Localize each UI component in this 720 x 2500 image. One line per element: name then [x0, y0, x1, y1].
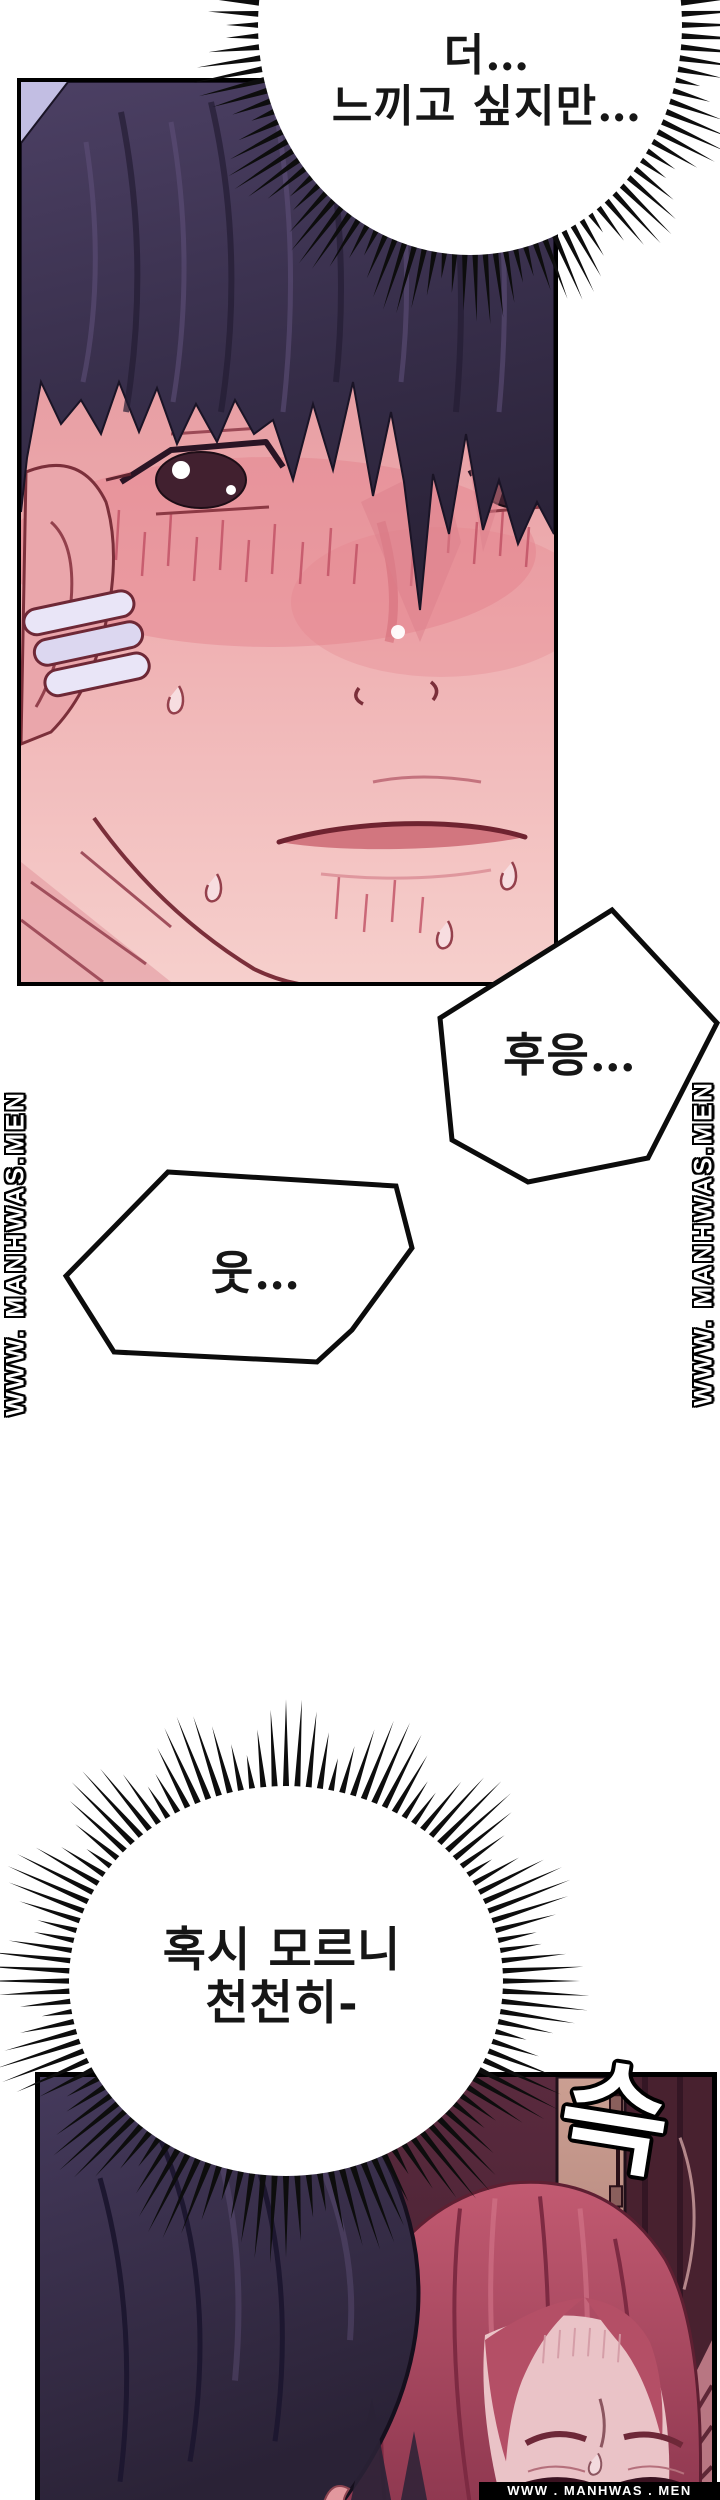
- panel-woman-room: [35, 2072, 717, 2500]
- watermark-right: WWW. MANHWAS.MEN: [690, 1080, 719, 1406]
- panel-man-closeup: [17, 78, 558, 986]
- speech-moan: 후응…: [450, 1030, 690, 1080]
- watermark-bottom-bar: WWW . MANHWAS . MEN: [479, 2482, 720, 2500]
- speech-top-burst: 더… 느끼고 싶지만…: [277, 30, 697, 132]
- speech-grunt: 웃…: [136, 1248, 376, 1298]
- speech-line: 혹시 모르니: [82, 1924, 482, 1977]
- speech-line: 느끼고 싶지만…: [277, 81, 697, 132]
- man-hair-back: [40, 2077, 428, 2500]
- speech-line: 후응…: [450, 1030, 690, 1080]
- speech-line: 웃…: [136, 1248, 376, 1298]
- watermark-left: WWW. MANHWAS.MEN: [2, 1090, 31, 1416]
- panel-man-art: [21, 82, 554, 982]
- comic-page: 슥 더… 느끼고 싶지만… 후응… 웃… 혹시 모르니 천천히- WWW. MA…: [0, 0, 720, 2500]
- speech-line: 천천히-: [82, 1977, 482, 2030]
- panel-woman-art: [40, 2077, 712, 2500]
- speech-line: 더…: [277, 30, 697, 81]
- speech-bottom-burst: 혹시 모르니 천천히-: [82, 1924, 482, 2030]
